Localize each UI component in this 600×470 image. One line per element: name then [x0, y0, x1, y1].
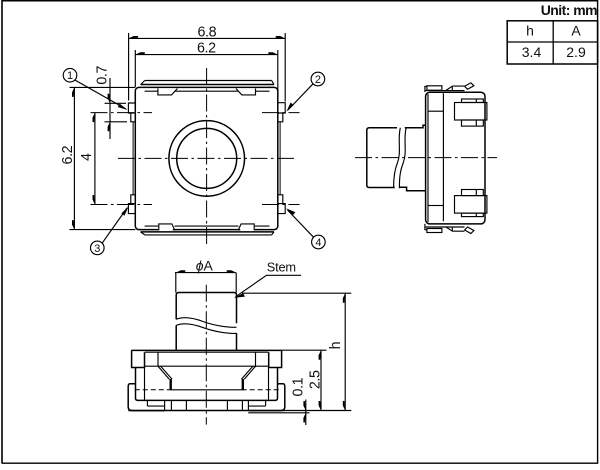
- svg-text:6.2: 6.2: [60, 145, 76, 164]
- svg-text:4: 4: [79, 153, 95, 161]
- svg-text:6.2: 6.2: [197, 40, 216, 56]
- svg-text:2.5: 2.5: [307, 370, 323, 389]
- svg-text:h: h: [328, 341, 344, 349]
- svg-text:0.1: 0.1: [291, 377, 307, 396]
- svg-text:4: 4: [315, 237, 321, 249]
- svg-text:1: 1: [67, 70, 73, 82]
- svg-text:2.9: 2.9: [566, 44, 586, 60]
- svg-text:ϕA: ϕA: [196, 258, 214, 274]
- svg-text:Unit: mm: Unit: mm: [541, 2, 597, 18]
- svg-text:3.4: 3.4: [522, 44, 542, 60]
- svg-text:2: 2: [315, 74, 321, 86]
- svg-text:6.8: 6.8: [197, 24, 216, 40]
- svg-text:Stem: Stem: [267, 260, 296, 275]
- svg-text:0.7: 0.7: [94, 66, 110, 85]
- svg-text:h: h: [526, 22, 534, 38]
- svg-text:3: 3: [94, 243, 100, 255]
- svg-text:A: A: [571, 22, 581, 38]
